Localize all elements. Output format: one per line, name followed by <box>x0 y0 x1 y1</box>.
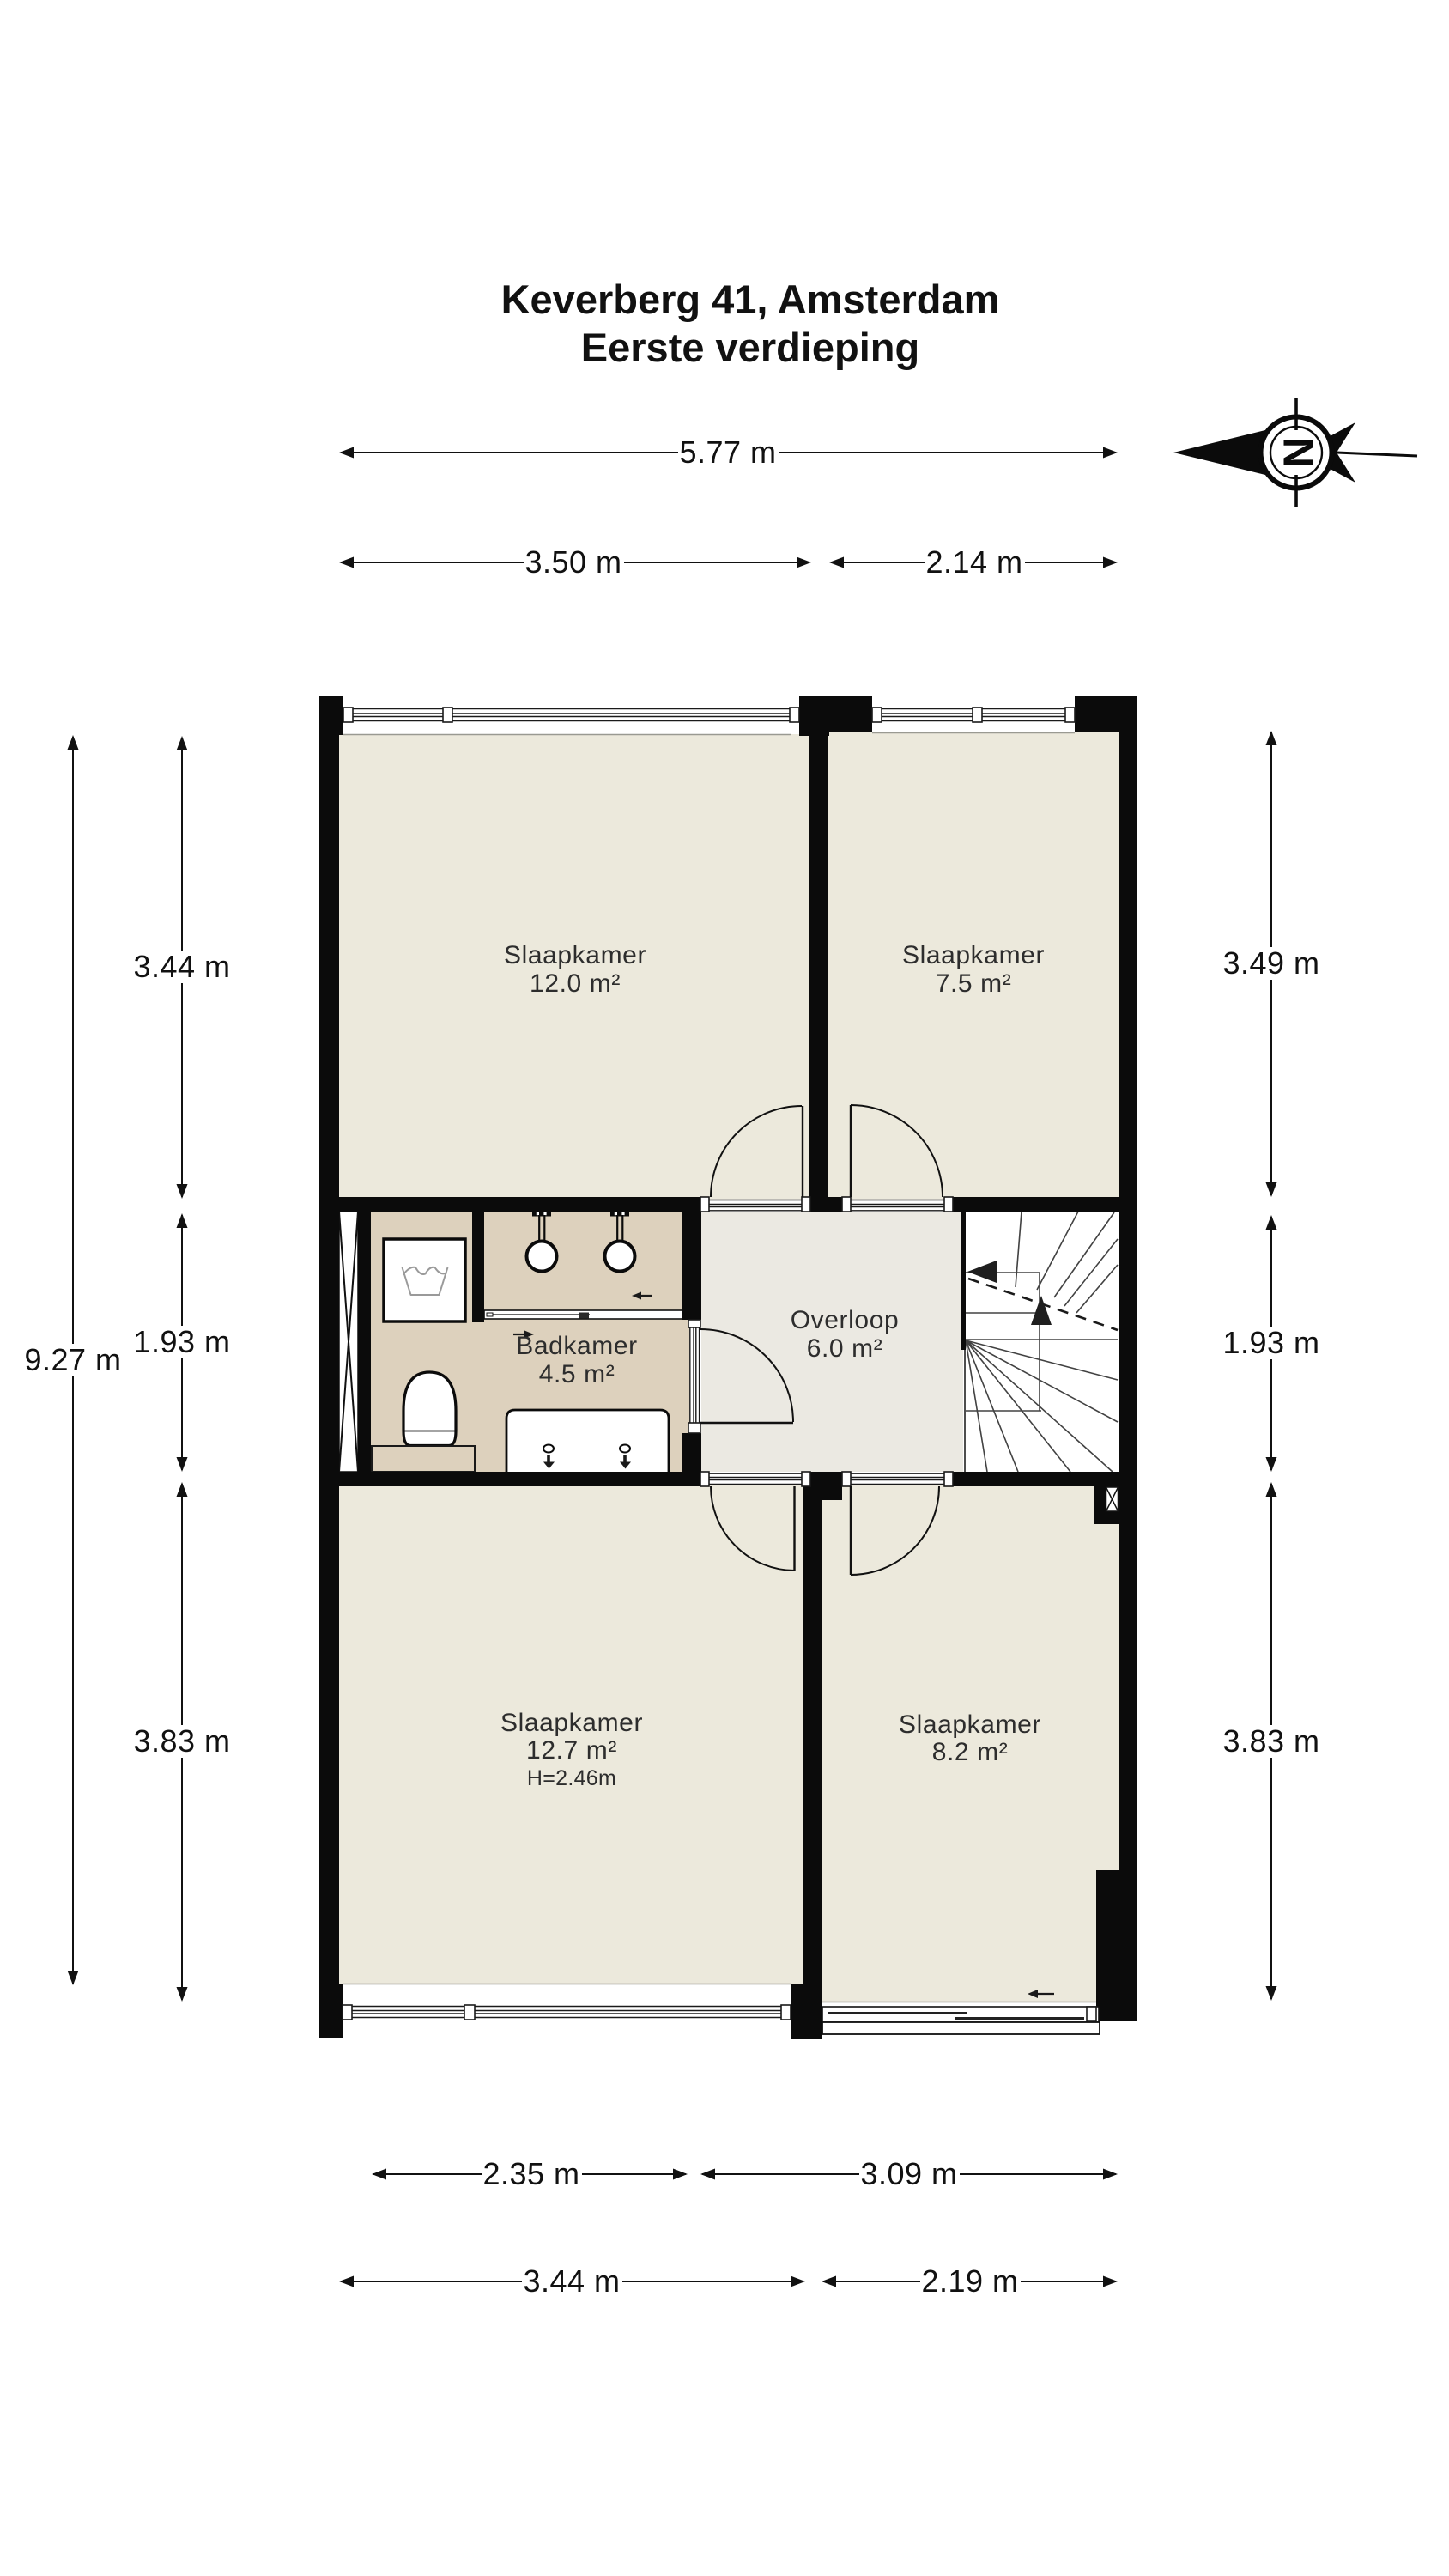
svg-text:8.2 m²: 8.2 m² <box>932 1738 1009 1766</box>
svg-text:1.93 m: 1.93 m <box>133 1324 230 1359</box>
svg-text:Slaapkamer: Slaapkamer <box>899 1710 1041 1739</box>
svg-text:Badkamer: Badkamer <box>516 1332 638 1360</box>
svg-text:H=2.46m: H=2.46m <box>527 1766 616 1790</box>
svg-text:1.93 m: 1.93 m <box>1222 1325 1319 1360</box>
svg-text:3.44 m: 3.44 m <box>523 2263 620 2299</box>
svg-text:9.27 m: 9.27 m <box>24 1342 121 1377</box>
svg-text:Slaapkamer: Slaapkamer <box>902 941 1045 969</box>
svg-text:Overloop: Overloop <box>791 1306 900 1334</box>
svg-text:Slaapkamer: Slaapkamer <box>504 941 646 969</box>
svg-text:5.77 m: 5.77 m <box>679 434 776 470</box>
svg-text:2.19 m: 2.19 m <box>921 2263 1018 2299</box>
svg-text:3.83 m: 3.83 m <box>1222 1723 1319 1759</box>
svg-text:3.49 m: 3.49 m <box>1222 945 1319 981</box>
svg-text:3.50 m: 3.50 m <box>524 544 621 580</box>
svg-text:Keverberg 41, Amsterdam: Keverberg 41, Amsterdam <box>501 276 1000 322</box>
svg-text:2.14 m: 2.14 m <box>925 544 1022 580</box>
svg-text:6.0 m²: 6.0 m² <box>807 1334 883 1363</box>
svg-text:3.83 m: 3.83 m <box>133 1723 230 1759</box>
svg-text:Slaapkamer: Slaapkamer <box>500 1709 643 1737</box>
svg-text:12.0 m²: 12.0 m² <box>530 969 621 998</box>
svg-text:2.35 m: 2.35 m <box>482 2156 579 2191</box>
svg-text:12.7 m²: 12.7 m² <box>526 1736 617 1765</box>
svg-text:N: N <box>1275 437 1323 468</box>
svg-text:3.09 m: 3.09 m <box>860 2156 957 2191</box>
svg-text:7.5 m²: 7.5 m² <box>936 969 1012 998</box>
svg-text:Eerste verdieping: Eerste verdieping <box>581 325 919 370</box>
svg-text:3.44 m: 3.44 m <box>133 949 230 984</box>
svg-text:4.5 m²: 4.5 m² <box>539 1360 615 1388</box>
